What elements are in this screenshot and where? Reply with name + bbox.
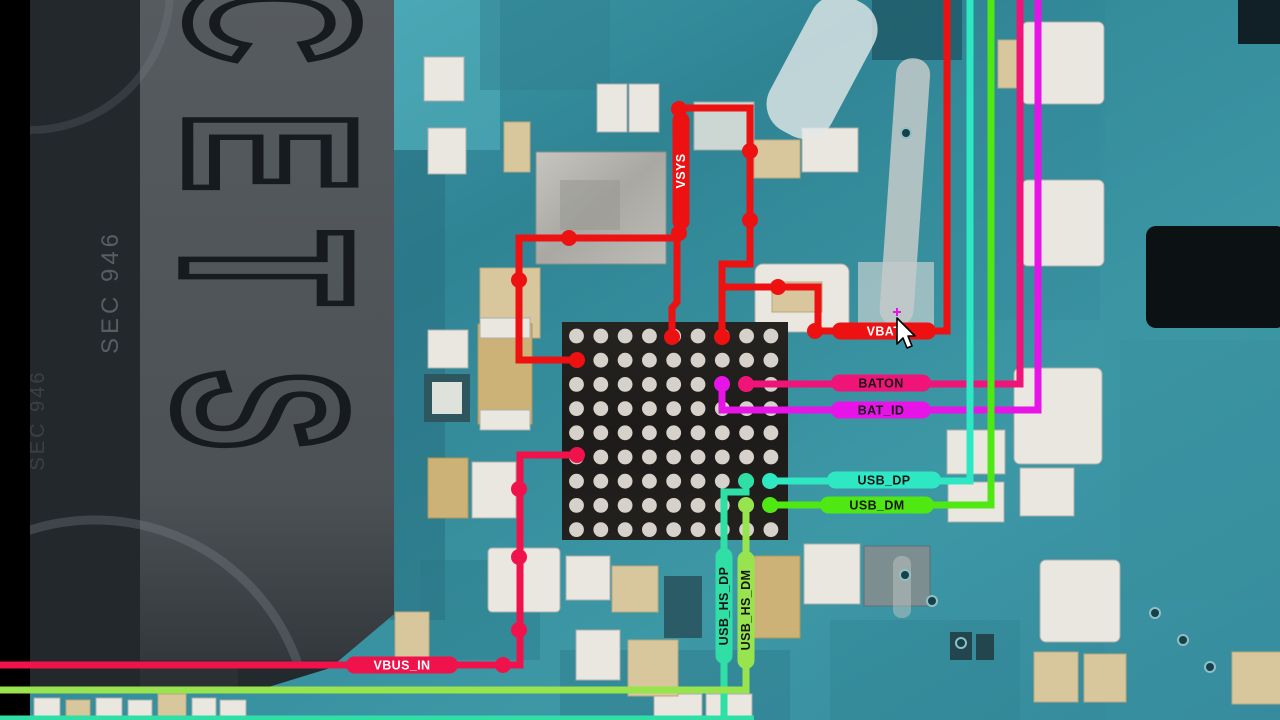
- junction-dot: [569, 447, 585, 463]
- junction-dot: [770, 279, 786, 295]
- junction-dot: [762, 497, 778, 513]
- bga-ball: [642, 522, 657, 537]
- pcb-decor: [597, 84, 627, 132]
- pcb-decor: [96, 698, 122, 718]
- pcb-decor: [1105, 0, 1280, 720]
- pcb-decor: [128, 700, 152, 718]
- left-black-bar: [0, 0, 30, 720]
- emi-shield: CETS SEC 946 SEC 946: [0, 0, 406, 720]
- bga-ball: [593, 377, 608, 392]
- junction-dot: [511, 481, 527, 497]
- junction-dot: [738, 473, 754, 489]
- pcb-decor: [192, 698, 216, 718]
- shield-letter: E: [136, 112, 404, 192]
- bga-ball: [593, 450, 608, 465]
- pcb-decor: [947, 430, 1005, 474]
- pcb-decor: [1150, 608, 1160, 618]
- net-label-text-usb_dp: USB_DP: [857, 474, 910, 488]
- bga-ball: [618, 329, 633, 344]
- pcb-decor: [654, 694, 702, 716]
- bga-ball: [642, 329, 657, 344]
- net-label-text-usb_dm: USB_DM: [849, 499, 904, 513]
- net-label-text-baton: BATON: [858, 377, 903, 391]
- pcb-decor: [1040, 560, 1120, 642]
- bga-ball: [764, 329, 779, 344]
- bga-ball: [569, 474, 584, 489]
- bga-ball: [666, 498, 681, 513]
- pcb-decor: [504, 122, 530, 172]
- pcb-decor: [480, 410, 530, 430]
- pcb-decor: [900, 570, 910, 580]
- bga-ball: [739, 450, 754, 465]
- bga-ball: [618, 377, 633, 392]
- pcb-decor: [1084, 654, 1126, 702]
- bga-ball: [593, 474, 608, 489]
- bga-ball: [593, 498, 608, 513]
- bga-ball: [691, 498, 706, 513]
- junction-dot: [664, 329, 680, 345]
- bga-ball: [593, 401, 608, 416]
- bga-ball: [666, 401, 681, 416]
- pcb-decor: [664, 576, 702, 638]
- screenshot-root: CETS SEC 946 SEC 946 VSYSVBATBATONBAT_ID…: [0, 0, 1280, 720]
- pcb-decor: [901, 128, 911, 138]
- junction-dot: [714, 329, 730, 345]
- junction-dot: [569, 352, 585, 368]
- junction-dot: [511, 622, 527, 638]
- bga-ball: [593, 353, 608, 368]
- pcb-decor: [1238, 0, 1280, 44]
- bga-ball: [715, 450, 730, 465]
- pcb-decor: [804, 544, 860, 604]
- pcb-decor: [566, 556, 610, 600]
- bga-ball: [593, 329, 608, 344]
- pcb-decor: [706, 694, 752, 716]
- pcb-decor: [976, 634, 994, 660]
- bga-ball: [691, 474, 706, 489]
- bga-ball: [642, 401, 657, 416]
- bga-ball: [642, 474, 657, 489]
- bga-ball: [739, 425, 754, 440]
- pcb-decor: [927, 596, 937, 606]
- junction-dot: [511, 549, 527, 565]
- bga-ball: [642, 450, 657, 465]
- bga-ball: [642, 353, 657, 368]
- bga-ball: [691, 522, 706, 537]
- junction-dot: [762, 473, 778, 489]
- bga-ball: [739, 329, 754, 344]
- bga-ball: [666, 377, 681, 392]
- bga-ball: [764, 450, 779, 465]
- bga-ball: [569, 377, 584, 392]
- pcb-decor: [1022, 180, 1104, 266]
- pcb-decor: [1034, 652, 1078, 702]
- bga-ball: [642, 377, 657, 392]
- bga-ball: [593, 522, 608, 537]
- shield-letter: S: [126, 370, 394, 450]
- bga-ball: [618, 474, 633, 489]
- pcb-decor: [754, 140, 800, 178]
- pcb-decor: [395, 612, 429, 658]
- junction-dot: [807, 323, 823, 339]
- shield-silkscreen-text-2: SEC 946: [27, 369, 49, 470]
- bga-ball: [666, 425, 681, 440]
- bga-ball: [691, 353, 706, 368]
- junction-dot: [738, 376, 754, 392]
- pcb-decor: [428, 458, 468, 518]
- bga-ball: [666, 474, 681, 489]
- bga-ball: [618, 522, 633, 537]
- bga-ball: [666, 450, 681, 465]
- pcb-decor: [1020, 468, 1074, 516]
- bga-ball: [691, 450, 706, 465]
- junction-dot: [511, 272, 527, 288]
- bga-ball: [569, 401, 584, 416]
- pcb-decor: [478, 324, 532, 424]
- bga-ball: [618, 353, 633, 368]
- bga-ball: [691, 425, 706, 440]
- pcb-decor: [480, 0, 610, 90]
- bga-ball: [593, 425, 608, 440]
- bga-ball: [691, 401, 706, 416]
- pcb-decor: [893, 556, 911, 618]
- junction-dot: [714, 376, 730, 392]
- junction-dot: [738, 497, 754, 513]
- pcb-decor: [576, 630, 620, 680]
- pcb-decor: [0, 0, 394, 720]
- shield-letter: T: [132, 231, 400, 304]
- bga-ball: [569, 522, 584, 537]
- pcb-decor: [629, 84, 659, 132]
- pcb-decor: [754, 556, 800, 638]
- pcb-decor: [432, 382, 462, 414]
- bga-ball: [618, 498, 633, 513]
- pcb-decor: [472, 462, 516, 518]
- pcb-decor: [1232, 652, 1280, 704]
- pcb-decor: [612, 566, 658, 612]
- bga-ball: [764, 425, 779, 440]
- pcb-decor: [220, 700, 246, 718]
- bga-ball: [642, 498, 657, 513]
- pcb-decor: [424, 57, 464, 101]
- bga-ball: [569, 329, 584, 344]
- bga-ball: [691, 329, 706, 344]
- pcb-decor: [66, 700, 90, 718]
- pcb-decor: [560, 180, 620, 230]
- junction-dot: [742, 212, 758, 228]
- bga-ball: [642, 425, 657, 440]
- shield-letter: C: [138, 0, 406, 63]
- pcb-decor: [428, 128, 466, 174]
- bga-ball: [666, 522, 681, 537]
- junction-dot: [561, 230, 577, 246]
- bga-ball: [739, 353, 754, 368]
- bga-ball: [569, 425, 584, 440]
- net-label-text-usb_hs_dm: USB_HS_DM: [739, 570, 753, 651]
- pcb-decor: [956, 638, 966, 648]
- bga-ball: [618, 425, 633, 440]
- bga-ball: [715, 474, 730, 489]
- net-label-text-usb_hs_dp: USB_HS_DP: [717, 567, 731, 646]
- shield-silkscreen-text: SEC 946: [97, 230, 124, 354]
- bga-ball: [569, 498, 584, 513]
- pcb-decor: [1022, 22, 1104, 104]
- net-label-text-bat_id: BAT_ID: [858, 404, 905, 418]
- net-label-text-vsys: VSYS: [674, 154, 688, 189]
- net-label-text-vbat: VBAT: [867, 325, 902, 339]
- pcb-decor: [140, 0, 394, 660]
- bga-ball: [764, 353, 779, 368]
- bga-ball: [618, 450, 633, 465]
- pcb-decor: [1178, 635, 1188, 645]
- bga-ball: [618, 401, 633, 416]
- junction-dot: [742, 143, 758, 159]
- junction-dot: [495, 657, 511, 673]
- bga-ball: [715, 425, 730, 440]
- pcb-decor: [1014, 368, 1102, 464]
- bga-chip: [562, 322, 788, 540]
- bga-ball: [764, 522, 779, 537]
- pcb-decor: [34, 698, 60, 718]
- pcb-decor: [1205, 662, 1215, 672]
- pcb-decor: [1146, 226, 1280, 328]
- bga-ball: [715, 353, 730, 368]
- bga-ball: [691, 377, 706, 392]
- pcb-decor: [158, 694, 186, 718]
- net-label-text-vbus_in: VBUS_IN: [374, 659, 431, 673]
- pcb-decor: [428, 330, 468, 368]
- pcb-charging-ways-diagram: CETS SEC 946 SEC 946 VSYSVBATBATONBAT_ID…: [0, 0, 1280, 720]
- bga-ball: [666, 353, 681, 368]
